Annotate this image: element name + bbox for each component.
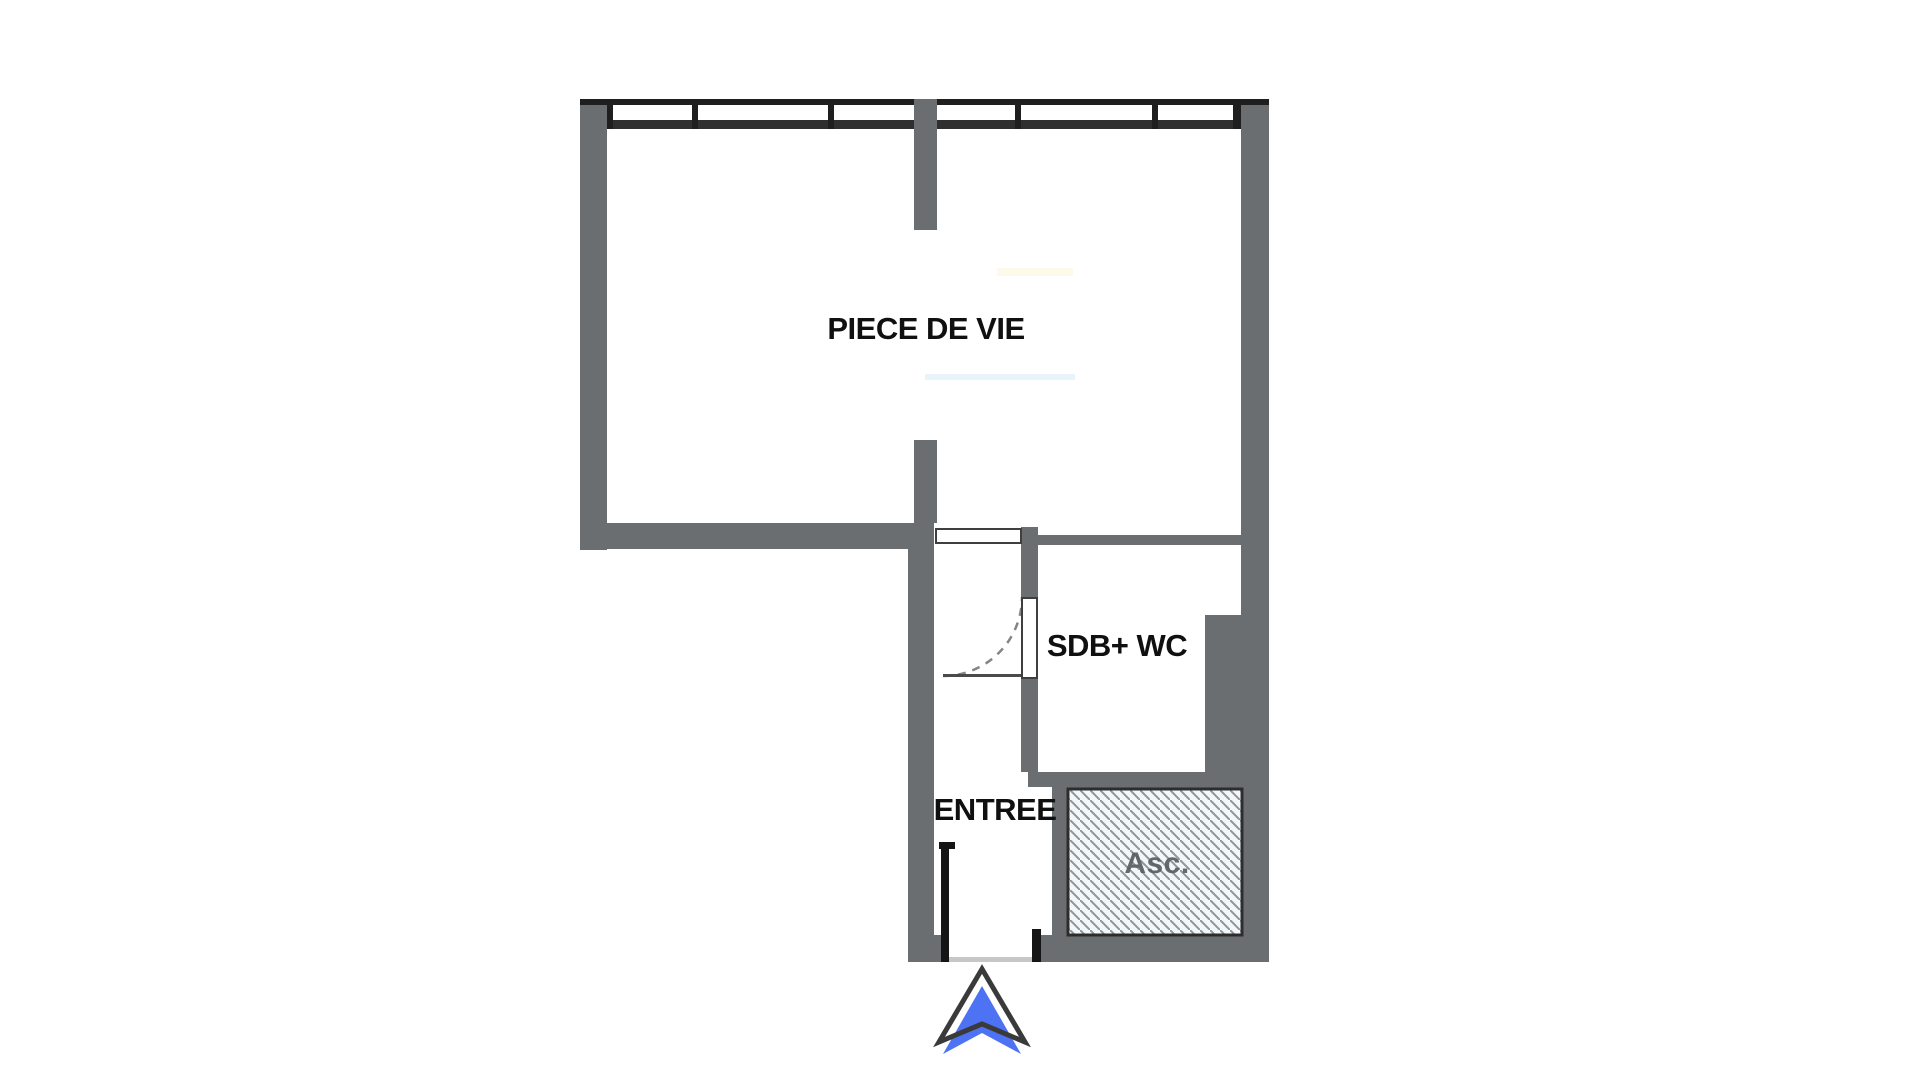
window-band [580,99,1269,230]
window-mullion [692,99,698,129]
window-mullion [607,99,613,129]
entrance-door [939,842,1041,962]
wall-stub-upper [914,99,937,230]
wall-living-bottom [580,523,933,549]
entrance-gap [948,935,1032,958]
entrance-door-leaf-cap [939,842,955,849]
window-mullion [1233,99,1241,129]
window-mullion [828,99,834,129]
wall-corridor-left [908,523,934,962]
room-label-piece-de-vie: PIECE DE VIE [827,311,1024,347]
floor-plan-page: PIECE DE VIE SDB+ WC ENTREE Asc. [0,0,1920,1080]
wall-left [580,101,607,550]
entrance-door-leaf [941,849,949,962]
wall-bathroom-left-lower [1021,678,1038,772]
window-mullion [1015,99,1021,129]
room-label-entree: ENTREE [934,792,1057,828]
door-swing-arc [943,597,1022,676]
wall-bathroom-right-block [1205,615,1269,787]
entrance-right-jamb [1032,929,1041,962]
entrance-arrow-icon [939,969,1025,1054]
entrance-threshold-line [948,957,1032,962]
wall-bathroom-left-upper [1021,527,1038,597]
room-label-ascenseur: Asc. [1124,847,1189,881]
wall-stub-lower [914,440,937,523]
door-open-line [943,674,1022,677]
floor-plan-drawing [0,0,1920,1080]
door-leaf [1022,598,1037,678]
wall-bathroom-top [1038,535,1241,545]
room-label-sdb-wc: SDB+ WC [1047,628,1187,664]
window-mullion [1152,99,1158,129]
living-doorway-threshold [936,529,1021,543]
bathroom-door [943,597,1037,678]
